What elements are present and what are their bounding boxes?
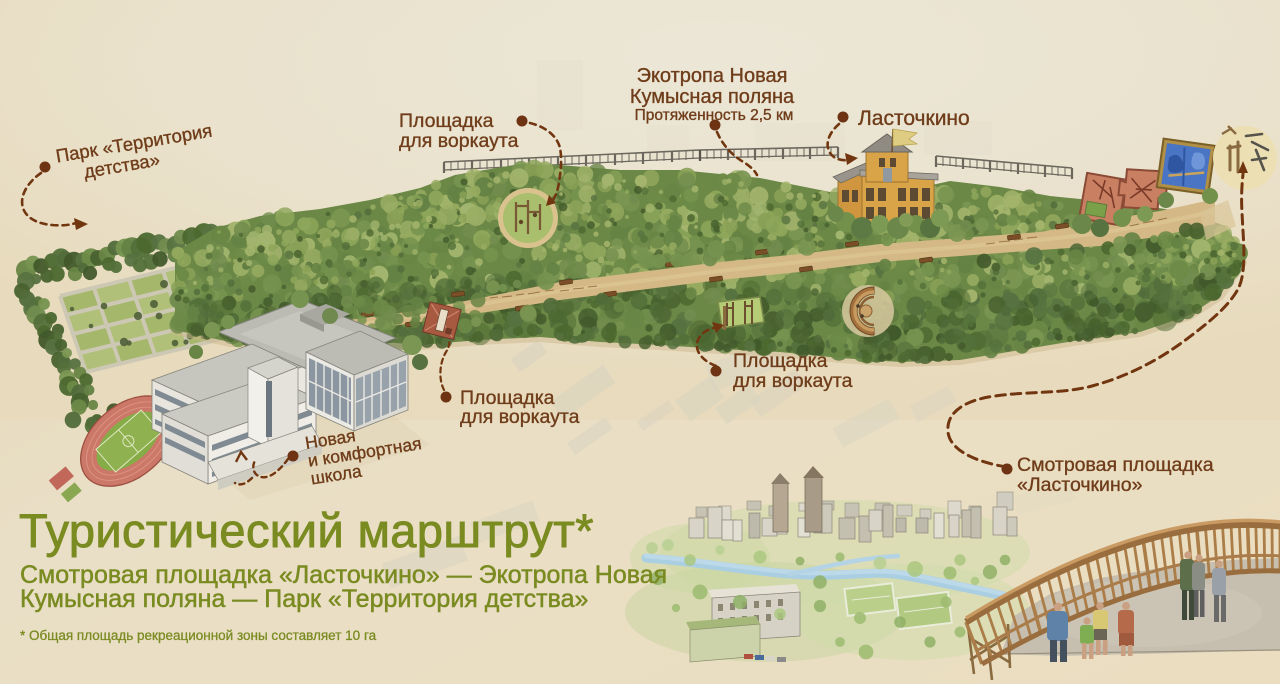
svg-text:Смотровая площадка: Смотровая площадка xyxy=(1017,454,1214,476)
svg-text:Ласточкино: Ласточкино xyxy=(858,107,970,130)
svg-text:Кумысная поляна — Парк «Террит: Кумысная поляна — Парк «Территория детст… xyxy=(20,585,588,613)
svg-text:Протяженность 2,5 км: Протяженность 2,5 км xyxy=(635,107,794,124)
svg-text:Площадка: Площадка xyxy=(733,350,828,372)
svg-text:Площадка: Площадка xyxy=(399,110,494,132)
svg-text:для воркаута: для воркаута xyxy=(399,130,519,152)
svg-text:«Ласточкино»: «Ласточкино» xyxy=(1017,474,1143,496)
svg-text:для воркаута: для воркаута xyxy=(460,406,580,428)
svg-text:для воркаута: для воркаута xyxy=(733,370,853,392)
svg-text:Туристический марштрут*: Туристический марштрут* xyxy=(19,504,594,557)
svg-text:* Общая площадь рекреационной: * Общая площадь рекреационной зоны соста… xyxy=(20,628,377,643)
svg-text:Экотропа Новая: Экотропа Новая xyxy=(637,65,788,87)
svg-text:Кумысная поляна: Кумысная поляна xyxy=(630,86,795,108)
